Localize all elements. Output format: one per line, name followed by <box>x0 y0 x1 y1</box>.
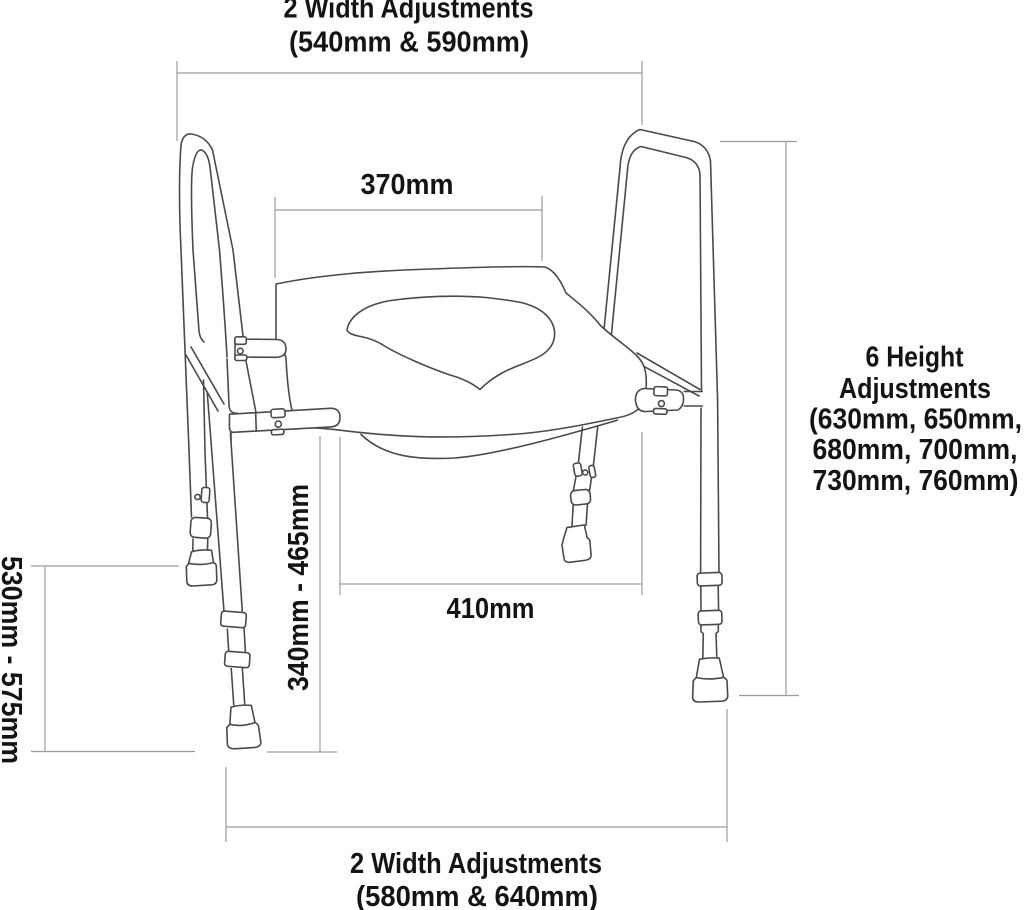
svg-text:(540mm & 590mm): (540mm & 590mm) <box>289 27 529 59</box>
svg-text:(630mm, 650mm,: (630mm, 650mm, <box>809 404 1022 436</box>
svg-text:(580mm & 640mm): (580mm & 640mm) <box>356 881 598 910</box>
svg-text:730mm, 760mm): 730mm, 760mm) <box>813 465 1019 497</box>
svg-text:410mm: 410mm <box>447 593 535 625</box>
svg-text:340mm - 465mm: 340mm - 465mm <box>283 484 315 691</box>
svg-text:2 Width Adjustments: 2 Width Adjustments <box>350 848 602 880</box>
svg-text:680mm, 700mm,: 680mm, 700mm, <box>813 434 1018 466</box>
svg-text:2 Width Adjustments: 2 Width Adjustments <box>284 0 534 25</box>
svg-text:6 Height: 6 Height <box>866 342 964 374</box>
svg-text:370mm: 370mm <box>361 169 454 201</box>
svg-text:530mm - 575mm: 530mm - 575mm <box>0 556 27 764</box>
svg-text:Adjustments: Adjustments <box>839 373 991 405</box>
